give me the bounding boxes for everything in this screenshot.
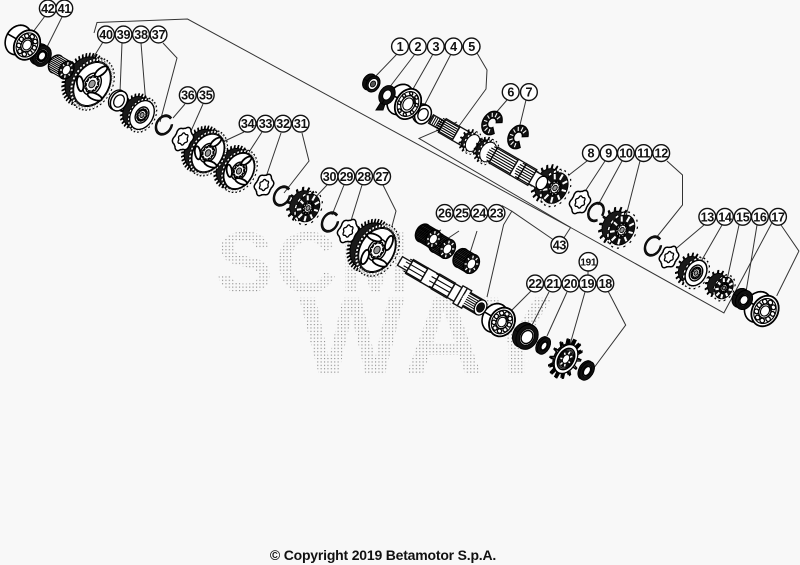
svg-text:15: 15 <box>736 210 750 224</box>
svg-text:23: 23 <box>490 207 504 221</box>
svg-text:2: 2 <box>414 40 421 54</box>
svg-text:1: 1 <box>397 40 404 54</box>
svg-text:11: 11 <box>637 147 650 161</box>
svg-text:25: 25 <box>455 207 469 221</box>
svg-text:31: 31 <box>294 117 308 131</box>
svg-text:35: 35 <box>199 89 213 103</box>
svg-text:38: 38 <box>134 28 148 42</box>
svg-text:5: 5 <box>468 40 475 54</box>
svg-text:191: 191 <box>580 257 597 268</box>
svg-text:10: 10 <box>619 147 633 161</box>
svg-text:30: 30 <box>323 170 337 184</box>
svg-text:14: 14 <box>718 210 732 224</box>
svg-text:13: 13 <box>701 210 715 224</box>
svg-text:4: 4 <box>450 40 457 54</box>
svg-text:34: 34 <box>241 117 255 131</box>
svg-text:29: 29 <box>340 170 354 184</box>
svg-text:21: 21 <box>546 277 560 291</box>
svg-text:33: 33 <box>259 117 273 131</box>
svg-text:20: 20 <box>564 277 578 291</box>
svg-text:32: 32 <box>276 117 290 131</box>
svg-text:36: 36 <box>181 89 195 103</box>
svg-text:42: 42 <box>41 2 55 16</box>
svg-text:43: 43 <box>553 238 567 252</box>
svg-text:© Copyright 2019 Betamotor S.p: © Copyright 2019 Betamotor S.p.A. <box>270 547 496 563</box>
svg-text:18: 18 <box>599 277 613 291</box>
svg-text:9: 9 <box>605 147 612 161</box>
svg-text:19: 19 <box>581 277 595 291</box>
svg-text:39: 39 <box>117 28 131 42</box>
svg-text:7: 7 <box>526 86 533 100</box>
svg-text:8: 8 <box>588 147 595 161</box>
svg-text:22: 22 <box>528 277 542 291</box>
svg-text:40: 40 <box>99 28 113 42</box>
svg-text:17: 17 <box>771 210 785 224</box>
svg-text:3: 3 <box>432 40 439 54</box>
svg-text:28: 28 <box>357 170 371 184</box>
svg-text:37: 37 <box>152 28 166 42</box>
svg-text:26: 26 <box>438 207 452 221</box>
svg-text:12: 12 <box>654 147 668 161</box>
svg-text:27: 27 <box>375 170 389 184</box>
svg-text:24: 24 <box>473 207 487 221</box>
svg-text:41: 41 <box>58 2 72 16</box>
svg-text:16: 16 <box>753 210 767 224</box>
svg-text:6: 6 <box>507 86 514 100</box>
